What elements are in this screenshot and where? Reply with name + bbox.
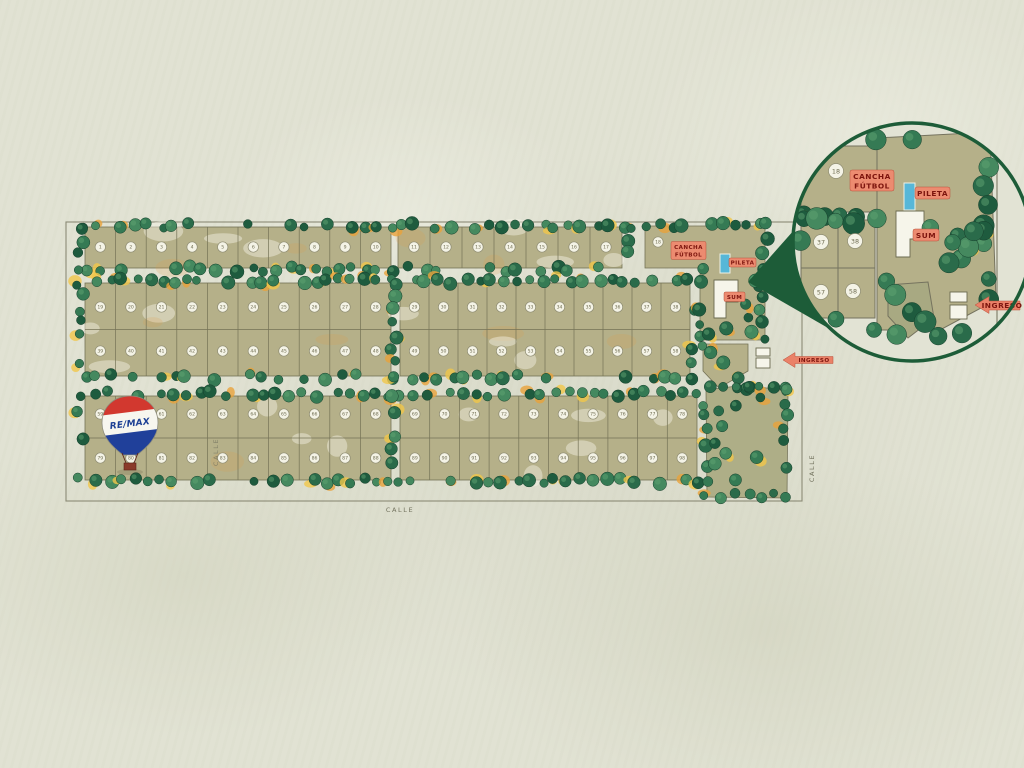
svg-text:41: 41 xyxy=(159,349,165,355)
lot-marker: 87 xyxy=(340,453,350,463)
site-plan-canvas: CALLE CALLE 1234567891011121314151617192… xyxy=(0,0,1024,768)
lot-marker: 71 xyxy=(469,409,479,419)
lot-marker: 70 xyxy=(439,409,449,419)
site-plan-map: CALLE CALLE 1234567891011121314151617192… xyxy=(0,0,1024,768)
svg-text:62: 62 xyxy=(189,412,195,418)
lot-marker: 6 xyxy=(248,242,258,252)
svg-text:14: 14 xyxy=(507,245,513,251)
inset-pool-shape xyxy=(904,183,915,210)
lot-marker: 48 xyxy=(371,346,381,356)
lot-marker: 16 xyxy=(569,242,579,252)
svg-text:15: 15 xyxy=(539,245,545,251)
lot-marker: 92 xyxy=(499,453,509,463)
inset-gate-structure xyxy=(950,292,967,302)
svg-text:38: 38 xyxy=(851,237,859,245)
svg-text:3: 3 xyxy=(160,245,163,251)
svg-text:88: 88 xyxy=(373,456,379,462)
svg-text:67: 67 xyxy=(342,412,348,418)
svg-text:97: 97 xyxy=(650,456,656,462)
lot-marker: 77 xyxy=(647,409,657,419)
pool-shape xyxy=(720,254,730,273)
lot-marker: 21 xyxy=(156,302,166,312)
lot-marker: 26 xyxy=(309,302,319,312)
svg-text:21: 21 xyxy=(159,305,165,311)
svg-text:23: 23 xyxy=(220,305,226,311)
cancha-label-line2: FÚTBOL xyxy=(675,252,702,259)
svg-text:46: 46 xyxy=(312,349,318,355)
svg-text:49: 49 xyxy=(412,349,418,355)
svg-text:50: 50 xyxy=(441,349,447,355)
svg-text:66: 66 xyxy=(312,412,318,418)
svg-text:7: 7 xyxy=(282,245,285,251)
svg-text:26: 26 xyxy=(312,305,318,311)
svg-text:91: 91 xyxy=(471,456,477,462)
svg-text:48: 48 xyxy=(373,349,379,355)
lot-marker: 78 xyxy=(677,409,687,419)
lot-marker: 24 xyxy=(248,302,258,312)
lot-marker: 9 xyxy=(340,242,350,252)
svg-text:19: 19 xyxy=(97,305,103,311)
lot-marker: 34 xyxy=(554,302,564,312)
svg-text:68: 68 xyxy=(373,412,379,418)
lot-marker: 28 xyxy=(371,302,381,312)
svg-text:13: 13 xyxy=(475,245,481,251)
svg-text:51: 51 xyxy=(470,349,476,355)
svg-text:1: 1 xyxy=(99,245,102,251)
lot-marker: 44 xyxy=(248,346,258,356)
lot-marker: 37 xyxy=(641,302,651,312)
lot-marker: 22 xyxy=(187,302,197,312)
lot-marker: 88 xyxy=(371,453,381,463)
svg-text:32: 32 xyxy=(499,305,505,311)
lot-marker: 2 xyxy=(126,242,136,252)
lot-marker: 64 xyxy=(248,409,258,419)
lot-marker: 62 xyxy=(187,409,197,419)
svg-text:29: 29 xyxy=(412,305,418,311)
svg-text:43: 43 xyxy=(220,349,226,355)
lot-marker: 38 xyxy=(848,234,863,249)
svg-text:35: 35 xyxy=(586,305,592,311)
lot-marker: 27 xyxy=(340,302,350,312)
lot-marker: 93 xyxy=(528,453,538,463)
corner-lot: 18 xyxy=(653,237,663,247)
lot-marker: 35 xyxy=(583,302,593,312)
lot-marker: 85 xyxy=(279,453,289,463)
lot-marker: 82 xyxy=(187,453,197,463)
lot-marker: 18 xyxy=(653,237,663,247)
svg-text:55: 55 xyxy=(586,349,592,355)
lot-marker: 73 xyxy=(528,409,538,419)
lot-marker: 67 xyxy=(340,409,350,419)
lot-marker: 69 xyxy=(410,409,420,419)
lot-marker: 38 xyxy=(670,302,680,312)
svg-text:71: 71 xyxy=(471,412,477,418)
lot-marker: 72 xyxy=(499,409,509,419)
lot-block-mid-right: 2930313233343536373849505152535455565758 xyxy=(388,283,690,376)
lot-marker: 46 xyxy=(309,346,319,356)
svg-text:54: 54 xyxy=(557,349,563,355)
svg-text:34: 34 xyxy=(557,305,563,311)
svg-text:42: 42 xyxy=(189,349,195,355)
svg-text:64: 64 xyxy=(250,412,256,418)
svg-text:18: 18 xyxy=(655,240,661,246)
svg-text:72: 72 xyxy=(501,412,507,418)
lot-marker: 7 xyxy=(279,242,289,252)
lot-marker: 58 xyxy=(846,284,861,299)
lot-marker: 42 xyxy=(187,346,197,356)
cancha-label-line1: CANCHA xyxy=(674,245,703,251)
svg-text:18: 18 xyxy=(832,167,840,175)
svg-text:11: 11 xyxy=(411,245,417,251)
svg-text:12: 12 xyxy=(443,245,449,251)
svg-text:57: 57 xyxy=(817,288,825,296)
svg-text:57: 57 xyxy=(644,349,650,355)
gate-structure xyxy=(756,348,770,356)
lot-marker: 96 xyxy=(618,453,628,463)
lot-marker: 12 xyxy=(441,242,451,252)
svg-text:38: 38 xyxy=(673,305,679,311)
svg-text:73: 73 xyxy=(531,412,537,418)
lot-marker: 23 xyxy=(218,302,228,312)
lot-marker: 30 xyxy=(438,302,448,312)
lot-marker: 4 xyxy=(187,242,197,252)
svg-text:10: 10 xyxy=(373,245,379,251)
inset-gate-structure xyxy=(950,305,967,319)
svg-text:20: 20 xyxy=(128,305,134,311)
svg-text:69: 69 xyxy=(412,412,418,418)
lot-marker: 53 xyxy=(525,346,535,356)
lot-marker: 33 xyxy=(525,302,535,312)
svg-text:45: 45 xyxy=(281,349,287,355)
lot-marker: 98 xyxy=(677,453,687,463)
svg-text:86: 86 xyxy=(312,456,318,462)
lot-marker: 3 xyxy=(156,242,166,252)
gate-structure xyxy=(756,358,770,368)
svg-text:4: 4 xyxy=(191,245,194,251)
lot-marker: 37 xyxy=(814,235,829,250)
svg-text:37: 37 xyxy=(644,305,650,311)
svg-text:44: 44 xyxy=(250,349,256,355)
sum-label: SUM xyxy=(727,295,742,301)
lot-marker: 57 xyxy=(641,346,651,356)
lot-marker: 51 xyxy=(467,346,477,356)
inset-cancha-label-line1: CANCHA xyxy=(853,172,891,181)
lot-marker: 68 xyxy=(371,409,381,419)
svg-text:58: 58 xyxy=(673,349,679,355)
svg-text:22: 22 xyxy=(189,305,195,311)
svg-text:79: 79 xyxy=(97,456,103,462)
svg-text:37: 37 xyxy=(817,238,825,246)
svg-text:84: 84 xyxy=(250,456,256,462)
lot-marker: 55 xyxy=(583,346,593,356)
svg-text:77: 77 xyxy=(650,412,656,418)
svg-text:95: 95 xyxy=(590,456,596,462)
svg-text:75: 75 xyxy=(590,412,596,418)
magnifier-inset: 1837385758 CANCHA FÚTBOL PILETA SUM INGR… xyxy=(791,123,1024,361)
svg-text:98: 98 xyxy=(679,456,685,462)
svg-text:28: 28 xyxy=(373,305,379,311)
lot-block-mid-left: 1920212223242526272839404142434445464748 xyxy=(81,283,391,376)
svg-text:17: 17 xyxy=(603,245,609,251)
svg-text:25: 25 xyxy=(281,305,287,311)
svg-text:82: 82 xyxy=(189,456,195,462)
ingreso-label: INGRESO xyxy=(798,358,829,364)
svg-text:87: 87 xyxy=(342,456,348,462)
svg-text:89: 89 xyxy=(412,456,418,462)
lot-marker: 29 xyxy=(409,302,419,312)
svg-text:27: 27 xyxy=(342,305,348,311)
lot-marker: 81 xyxy=(156,453,166,463)
svg-text:78: 78 xyxy=(679,412,685,418)
lot-marker: 17 xyxy=(601,242,611,252)
lot-marker: 39 xyxy=(95,346,105,356)
svg-text:8: 8 xyxy=(313,245,316,251)
svg-text:81: 81 xyxy=(159,456,165,462)
svg-text:63: 63 xyxy=(220,412,226,418)
lot-marker: 79 xyxy=(95,453,105,463)
svg-text:94: 94 xyxy=(560,456,566,462)
lot-marker: 25 xyxy=(279,302,289,312)
svg-text:74: 74 xyxy=(560,412,566,418)
inset-cancha-label-line2: FÚTBOL xyxy=(854,182,890,191)
svg-text:65: 65 xyxy=(281,412,287,418)
svg-text:83: 83 xyxy=(220,456,226,462)
lot-marker: 36 xyxy=(612,302,622,312)
lot-marker: 8 xyxy=(309,242,319,252)
svg-text:36: 36 xyxy=(615,305,621,311)
lot-marker: 40 xyxy=(126,346,136,356)
svg-text:76: 76 xyxy=(620,412,626,418)
lot-marker: 86 xyxy=(309,453,319,463)
lot-marker: 11 xyxy=(409,242,419,252)
svg-text:40: 40 xyxy=(128,349,134,355)
svg-text:9: 9 xyxy=(344,245,347,251)
lot-marker: 76 xyxy=(618,409,628,419)
inset-sum-label: SUM xyxy=(916,231,936,240)
lot-marker: 89 xyxy=(410,453,420,463)
lot-marker: 47 xyxy=(340,346,350,356)
lot-marker: 20 xyxy=(126,302,136,312)
lot-marker: 91 xyxy=(469,453,479,463)
svg-text:61: 61 xyxy=(159,412,165,418)
balloon-basket xyxy=(124,463,136,470)
svg-text:5: 5 xyxy=(221,245,224,251)
lot-marker: 94 xyxy=(558,453,568,463)
svg-text:52: 52 xyxy=(499,349,505,355)
lot-marker: 57 xyxy=(814,285,829,300)
lot-block-bottom-right: 6970717273747576777889909192939495969798 xyxy=(400,396,697,487)
lot-marker: 32 xyxy=(496,302,506,312)
svg-text:31: 31 xyxy=(470,305,476,311)
svg-text:39: 39 xyxy=(97,349,103,355)
svg-text:96: 96 xyxy=(620,456,626,462)
lot-marker: 18 xyxy=(829,164,844,179)
street-label-inner: CALLE xyxy=(212,438,220,466)
lot-marker: 97 xyxy=(647,453,657,463)
svg-text:80: 80 xyxy=(128,456,134,462)
lot-marker: 15 xyxy=(537,242,547,252)
svg-text:92: 92 xyxy=(501,456,507,462)
lot-marker: 58 xyxy=(670,346,680,356)
lot-marker: 10 xyxy=(371,242,381,252)
lot-marker: 63 xyxy=(218,409,228,419)
lot-marker: 65 xyxy=(279,409,289,419)
lot-marker: 49 xyxy=(409,346,419,356)
street-label-bottom: CALLE xyxy=(386,506,414,514)
lot-marker: 56 xyxy=(612,346,622,356)
svg-text:47: 47 xyxy=(342,349,348,355)
svg-text:30: 30 xyxy=(441,305,447,311)
lot-marker: 19 xyxy=(95,302,105,312)
svg-text:6: 6 xyxy=(252,245,255,251)
pileta-label: PILETA xyxy=(731,261,755,267)
street-label-right: CALLE xyxy=(808,454,816,482)
svg-text:58: 58 xyxy=(849,287,857,295)
svg-text:90: 90 xyxy=(442,456,448,462)
lot-marker: 31 xyxy=(467,302,477,312)
lot-marker: 14 xyxy=(505,242,515,252)
lot-marker: 74 xyxy=(558,409,568,419)
lot-marker: 90 xyxy=(439,453,449,463)
lot-marker: 45 xyxy=(279,346,289,356)
svg-text:33: 33 xyxy=(528,305,534,311)
lot-marker: 52 xyxy=(496,346,506,356)
svg-text:2: 2 xyxy=(129,245,132,251)
lot-marker: 95 xyxy=(588,453,598,463)
lot-marker: 43 xyxy=(218,346,228,356)
svg-text:56: 56 xyxy=(615,349,621,355)
lot-marker: 84 xyxy=(248,453,258,463)
svg-text:16: 16 xyxy=(571,245,577,251)
svg-text:85: 85 xyxy=(281,456,287,462)
svg-text:93: 93 xyxy=(531,456,537,462)
lot-marker: 75 xyxy=(588,409,598,419)
lot-marker: 50 xyxy=(438,346,448,356)
inset-pileta-label: PILETA xyxy=(917,189,948,198)
lot-marker: 66 xyxy=(309,409,319,419)
lot-marker: 1 xyxy=(95,242,105,252)
lot-marker: 5 xyxy=(218,242,228,252)
lot-marker: 13 xyxy=(473,242,483,252)
lot-marker: 41 xyxy=(156,346,166,356)
svg-text:53: 53 xyxy=(528,349,534,355)
lot-marker: 54 xyxy=(554,346,564,356)
svg-text:24: 24 xyxy=(250,305,256,311)
svg-text:70: 70 xyxy=(442,412,448,418)
